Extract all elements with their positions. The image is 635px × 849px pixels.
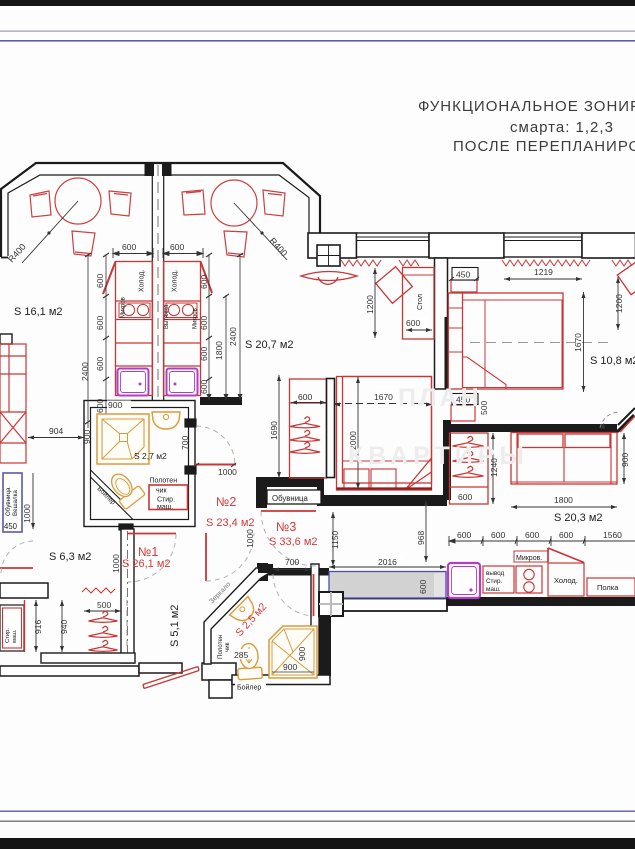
svg-text:маш.: маш. — [157, 504, 173, 511]
svg-text:1670: 1670 — [573, 333, 583, 352]
svg-text:1560: 1560 — [603, 530, 622, 540]
svg-text:940: 940 — [59, 620, 69, 634]
svg-text:600: 600 — [298, 392, 312, 402]
svg-text:450: 450 — [456, 270, 470, 280]
svg-text:600: 600 — [458, 492, 472, 502]
svg-text:S 33,6 м2: S 33,6 м2 — [269, 536, 318, 548]
svg-text:Обувница: Обувница — [272, 494, 309, 503]
svg-text:S 26,1 м2: S 26,1 м2 — [122, 558, 171, 570]
svg-text:1800: 1800 — [554, 495, 573, 505]
svg-text:КВАРТИРЫ: КВАРТИРЫ — [348, 442, 529, 470]
svg-text:1000: 1000 — [245, 529, 255, 548]
svg-text:Холод.: Холод. — [554, 576, 578, 585]
svg-text:№2: №2 — [216, 495, 236, 509]
svg-text:маш.: маш. — [486, 586, 501, 593]
svg-text:600: 600 — [559, 530, 573, 540]
svg-text:Полка: Полка — [597, 583, 619, 592]
svg-text:S 6,3 м2: S 6,3 м2 — [49, 551, 91, 563]
svg-text:600: 600 — [95, 274, 105, 288]
svg-text:Стир.: Стир. — [5, 628, 11, 643]
svg-text:600: 600 — [418, 580, 428, 594]
svg-text:Полотен: Полотен — [150, 478, 178, 485]
svg-text:1000: 1000 — [218, 467, 237, 477]
svg-text:Вешалка: Вешалка — [12, 490, 19, 516]
svg-text:450: 450 — [4, 522, 18, 531]
svg-text:900: 900 — [108, 400, 122, 410]
svg-text:600: 600 — [199, 347, 209, 361]
svg-text:968: 968 — [416, 531, 426, 545]
svg-text:600: 600 — [199, 275, 209, 289]
svg-text:S 5,1 м2: S 5,1 м2 — [169, 605, 181, 647]
svg-text:Холод.: Холод. — [172, 270, 179, 292]
svg-text:R400: R400 — [6, 242, 28, 265]
svg-text:Стир.: Стир. — [486, 578, 502, 585]
svg-text:Микров: Микров — [193, 308, 199, 329]
svg-text:S 20,3 м2: S 20,3 м2 — [554, 512, 603, 524]
svg-text:916: 916 — [33, 620, 43, 634]
svg-text:Холод.: Холод. — [139, 270, 146, 292]
svg-text:1000: 1000 — [22, 504, 32, 523]
svg-text:ПОСЛЕ ПЕРЕПЛАНИРОВКИ: ПОСЛЕ ПЕРЕПЛАНИРОВКИ — [453, 138, 635, 155]
svg-text:S 23,4 м2: S 23,4 м2 — [206, 517, 255, 529]
svg-text:600: 600 — [199, 316, 209, 330]
svg-text:Микров.: Микров. — [516, 555, 542, 562]
svg-text:ПЛАН: ПЛАН — [398, 384, 482, 412]
svg-text:600: 600 — [95, 399, 105, 413]
svg-text:600: 600 — [170, 242, 184, 252]
svg-text:2016: 2016 — [378, 557, 397, 567]
svg-text:Стир.: Стир. — [157, 497, 175, 504]
svg-text:600: 600 — [491, 530, 505, 540]
svg-text:Обувница: Обувница — [5, 487, 12, 516]
svg-text:ФУНКЦИОНАЛЬНОЕ ЗОНИРОВАНИЕ: ФУНКЦИОНАЛЬНОЕ ЗОНИРОВАНИЕ — [418, 98, 635, 115]
svg-text:Полотен: Полотен — [217, 635, 224, 659]
svg-text:S 10,8 м2: S 10,8 м2 — [590, 355, 635, 367]
svg-text:R400: R400 — [268, 236, 290, 259]
svg-text:№3: №3 — [276, 520, 296, 534]
svg-text:1219: 1219 — [534, 267, 553, 277]
svg-text:1670: 1670 — [374, 392, 393, 402]
svg-text:S 20,7 м2: S 20,7 м2 — [245, 339, 294, 351]
svg-text:285: 285 — [234, 650, 248, 660]
svg-text:700: 700 — [180, 436, 190, 450]
svg-text:1690: 1690 — [269, 421, 279, 440]
svg-text:смарта: 1,2,3: смарта: 1,2,3 — [510, 119, 614, 136]
svg-text:600: 600 — [525, 530, 539, 540]
svg-text:904: 904 — [49, 426, 63, 436]
svg-text:S 2,7 м2: S 2,7 м2 — [134, 451, 167, 461]
svg-text:2400: 2400 — [80, 362, 90, 381]
svg-text:600: 600 — [95, 357, 105, 371]
svg-text:900: 900 — [620, 453, 630, 467]
svg-text:Вытяжка: Вытяжка — [164, 304, 170, 329]
svg-text:чик: чик — [156, 488, 168, 495]
svg-text:2400: 2400 — [228, 327, 238, 346]
svg-text:S 16,1 м2: S 16,1 м2 — [14, 306, 63, 318]
svg-text:1800: 1800 — [214, 341, 224, 360]
svg-text:1200: 1200 — [614, 294, 624, 313]
svg-text:900: 900 — [297, 647, 307, 661]
svg-text:Стол: Стол — [417, 294, 424, 310]
svg-text:маш.: маш. — [12, 629, 18, 643]
svg-text:№1: №1 — [138, 545, 158, 559]
svg-text:600: 600 — [199, 380, 209, 394]
svg-text:600: 600 — [406, 318, 420, 328]
svg-text:1150: 1150 — [330, 530, 340, 549]
svg-text:Бойлер: Бойлер — [237, 684, 261, 692]
svg-text:1200: 1200 — [365, 295, 375, 314]
svg-text:600: 600 — [457, 530, 471, 540]
svg-text:700: 700 — [285, 557, 299, 567]
svg-text:Микров: Микров — [121, 297, 127, 318]
svg-text:чик: чик — [224, 642, 231, 652]
svg-text:600: 600 — [95, 316, 105, 330]
svg-text:500: 500 — [97, 600, 111, 610]
svg-text:600: 600 — [122, 242, 136, 252]
svg-text:900: 900 — [283, 662, 297, 672]
svg-text:1000: 1000 — [111, 554, 121, 573]
svg-text:вывод: вывод — [486, 570, 505, 577]
svg-text:900: 900 — [82, 430, 92, 444]
